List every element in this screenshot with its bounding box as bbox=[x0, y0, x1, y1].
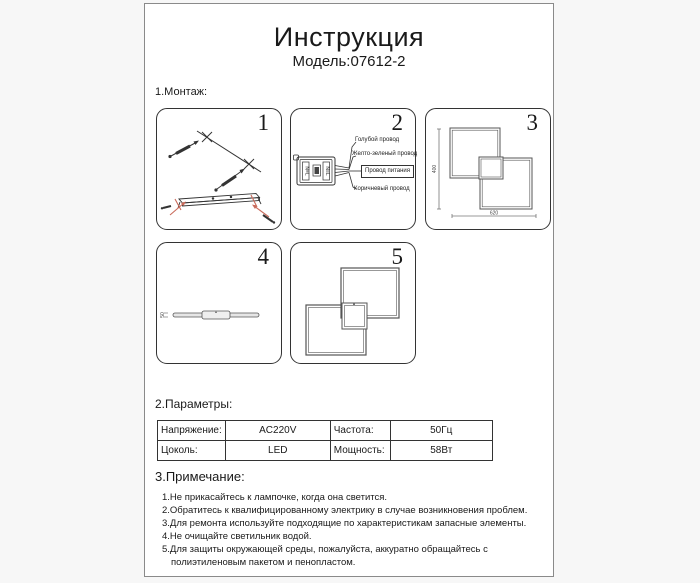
step-number: 2 bbox=[392, 110, 404, 136]
param-label-voltage: Напряжение: bbox=[158, 421, 226, 441]
step-number: 4 bbox=[258, 244, 270, 270]
montage-step-2-panel: N≡L N≡L Голубой провод Желто-зеленый про… bbox=[290, 108, 416, 230]
ceiling-anchors-drawing bbox=[171, 131, 261, 189]
wire-label-power: Провод питания bbox=[361, 165, 414, 178]
instruction-page: Инструкция Модель:07612-2 1.Монтаж: bbox=[144, 3, 554, 577]
note-item-2: 2.Обратитесь к квалифицированному электр… bbox=[162, 504, 546, 517]
param-value-socket: LED bbox=[225, 441, 330, 461]
param-value-frequency: 50Гц bbox=[390, 421, 492, 441]
terminal-marking-left: N≡L bbox=[304, 166, 310, 176]
dimension-height-label: 400 bbox=[432, 165, 438, 174]
terminal-marking-right: N≡L bbox=[324, 166, 330, 176]
section-parameters-heading: 2.Параметры: bbox=[155, 397, 232, 411]
dimension-thickness-label: 50 bbox=[160, 312, 166, 318]
wire-label-brown: Коричневый провод bbox=[354, 186, 410, 193]
wire-label-blue: Голубой провод bbox=[355, 137, 399, 144]
param-value-power: 58Вт bbox=[390, 441, 492, 461]
param-label-socket: Цоколь: bbox=[158, 441, 226, 461]
step-number: 3 bbox=[527, 110, 539, 136]
table-row: Цоколь: LED Мощность: 58Вт bbox=[158, 441, 493, 461]
montage-step-5-panel: 5 bbox=[290, 242, 416, 364]
step-number: 1 bbox=[258, 110, 270, 136]
model-number: Модель:07612-2 bbox=[145, 53, 553, 70]
note-item-3: 3.Для ремонта используйте подходящие по … bbox=[162, 517, 546, 530]
section-notes-heading: 3.Примечание: bbox=[155, 469, 245, 484]
wires bbox=[335, 142, 361, 189]
table-row: Напряжение: AC220V Частота: 50Гц bbox=[158, 421, 493, 441]
montage-step-1-panel: 1 bbox=[156, 108, 282, 230]
wire-label-yellow-green: Желто-зеленый провод bbox=[352, 151, 417, 158]
canopy-dot bbox=[215, 312, 216, 313]
lamp-frames bbox=[450, 128, 532, 209]
bracket-bar bbox=[178, 194, 261, 209]
note-item-5: 5.Для защиты окружающей среды, пожалуйст… bbox=[162, 543, 546, 569]
param-label-frequency: Частота: bbox=[330, 421, 390, 441]
section-montage-heading: 1.Монтаж: bbox=[155, 86, 207, 98]
note-item-4: 4.Не очищайте светильник водой. bbox=[162, 530, 546, 543]
param-label-power: Мощность: bbox=[330, 441, 390, 461]
dimension-width-label: 620 bbox=[490, 211, 499, 217]
note-item-1: 1.Не прикасайтесь к лампочке, когда она … bbox=[162, 491, 546, 504]
page-title: Инструкция bbox=[145, 22, 553, 53]
step-number: 5 bbox=[392, 244, 404, 270]
lamp-frames bbox=[306, 268, 399, 355]
montage-step-4-panel: 50 4 bbox=[156, 242, 282, 364]
screw-heads bbox=[168, 141, 245, 192]
notes-list: 1.Не прикасайтесь к лампочке, когда она … bbox=[162, 491, 546, 569]
param-value-voltage: AC220V bbox=[225, 421, 330, 441]
montage-step-3-panel: 400 620 3 bbox=[425, 108, 551, 230]
parameters-table: Напряжение: AC220V Частота: 50Гц Цоколь:… bbox=[157, 420, 493, 461]
